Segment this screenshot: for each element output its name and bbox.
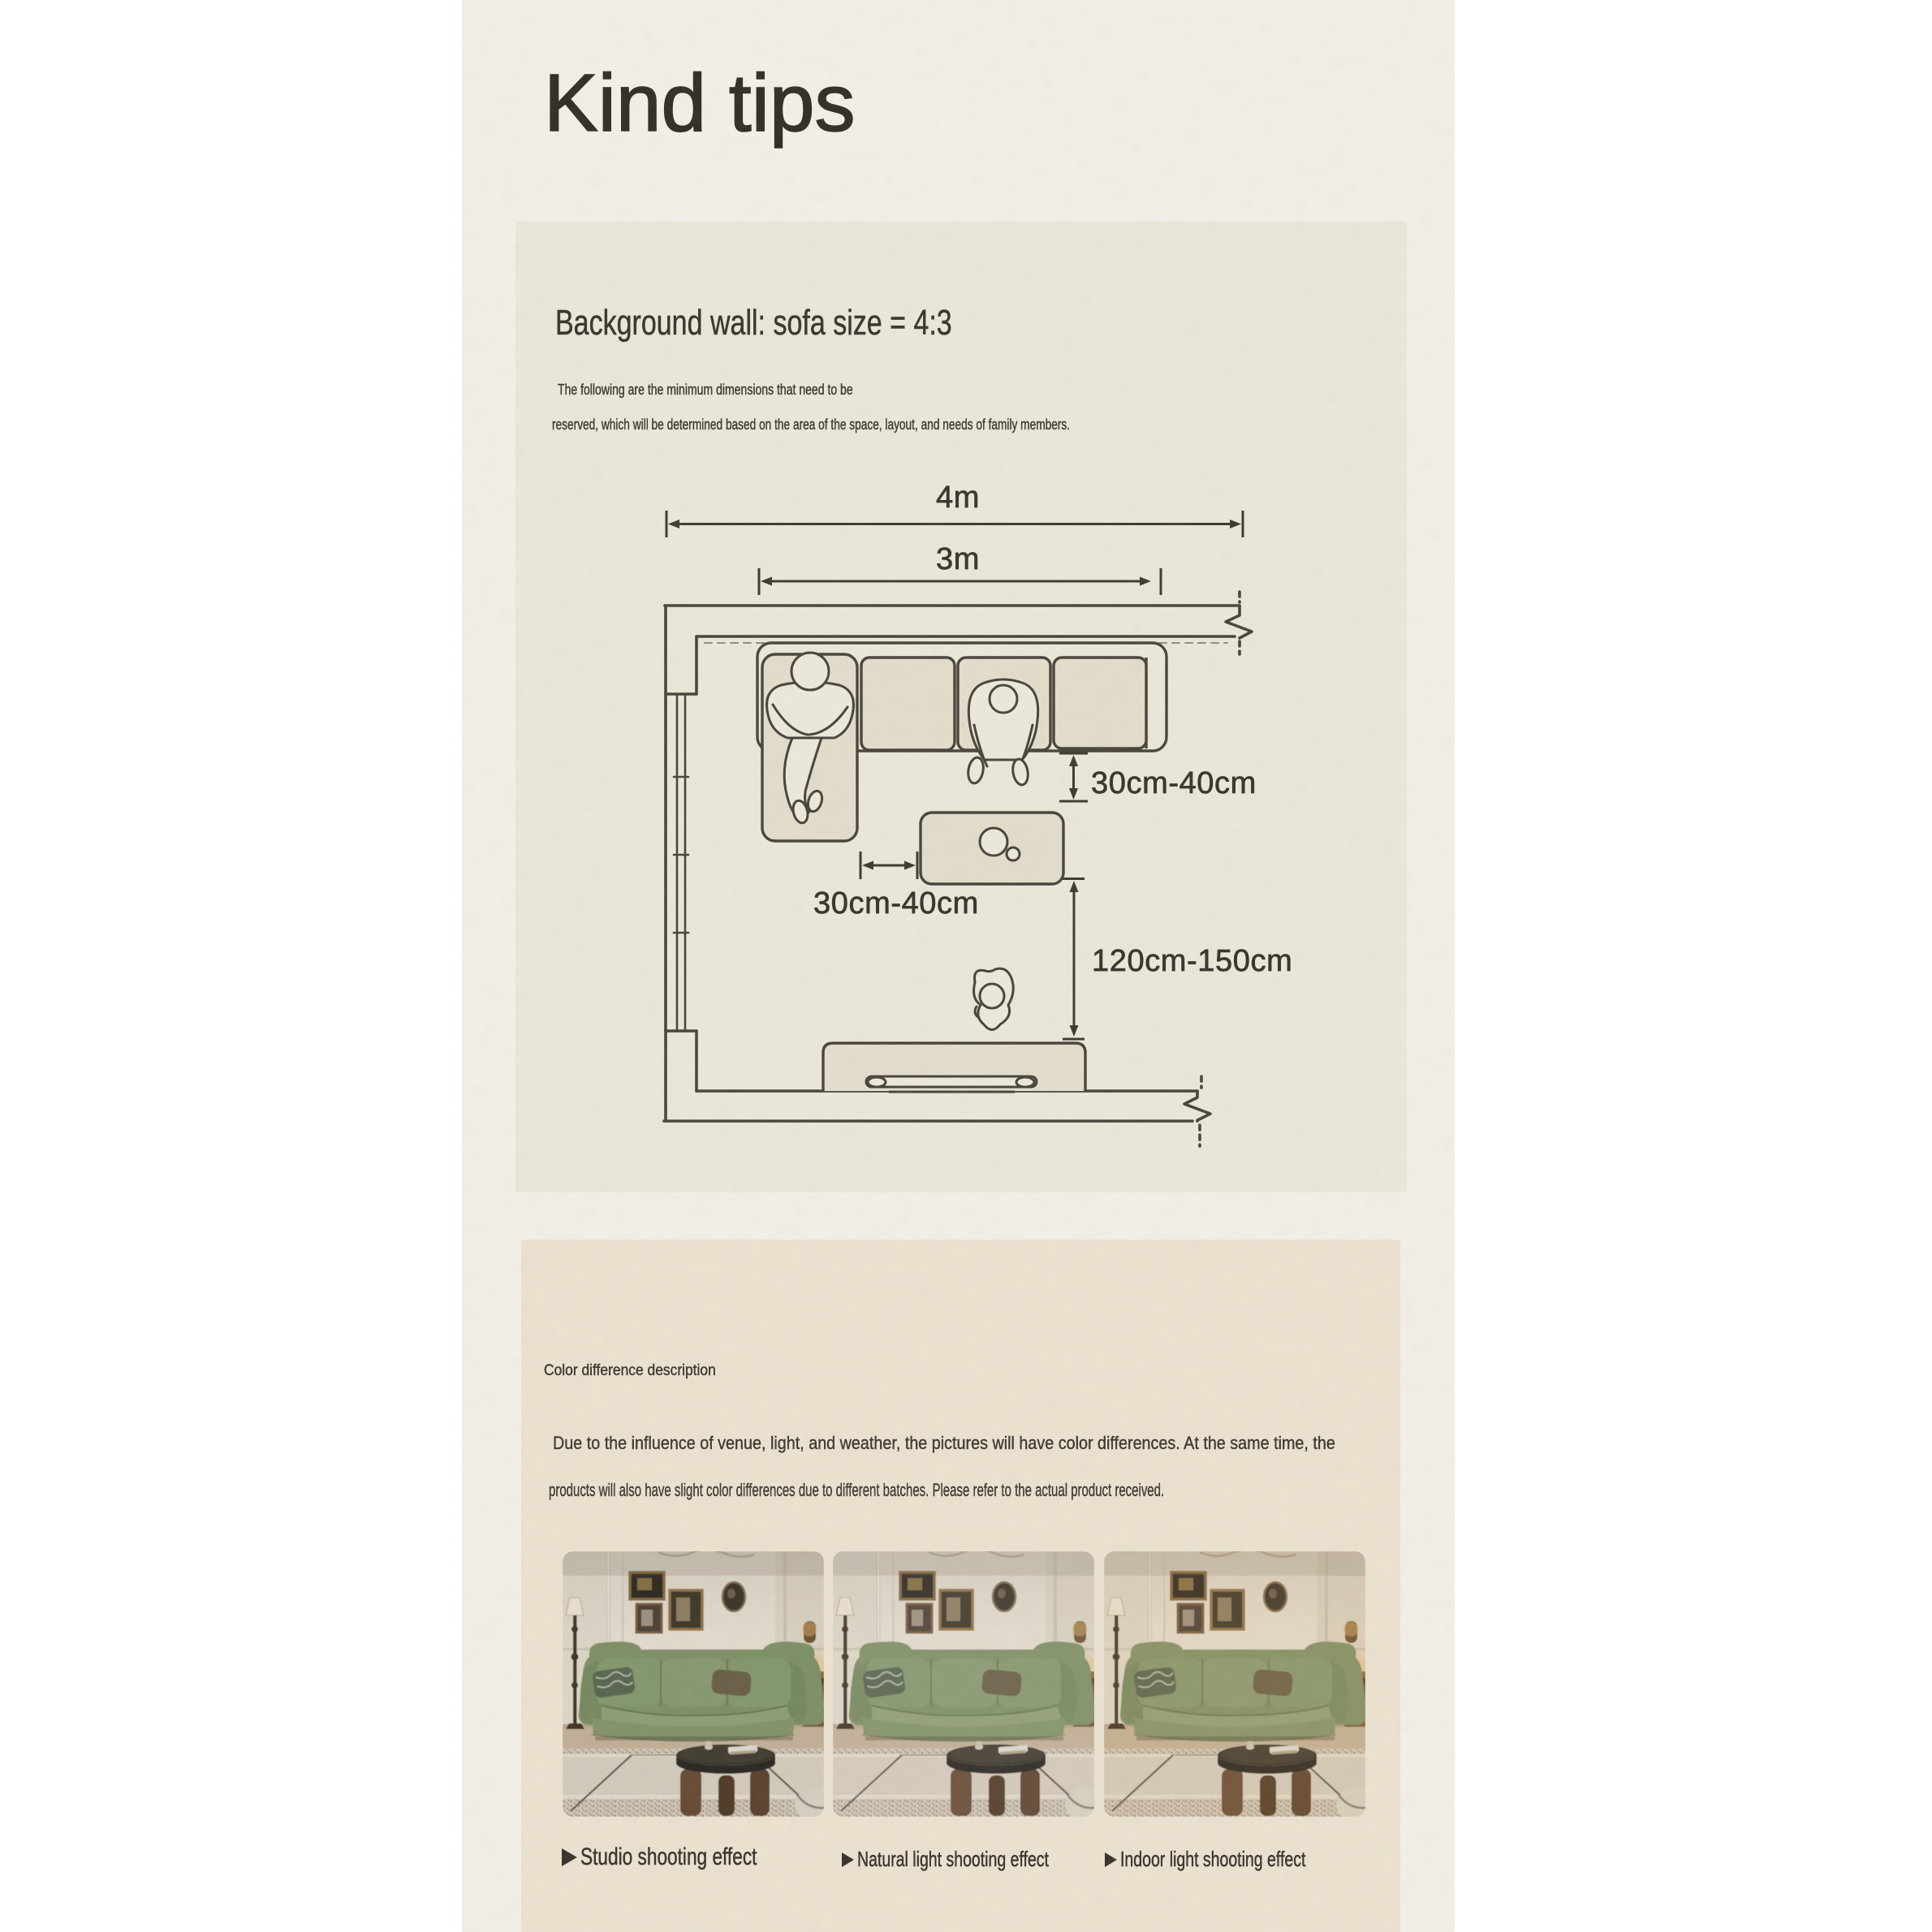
- svg-text:30cm-40cm: 30cm-40cm: [1091, 766, 1257, 800]
- svg-text:3m: 3m: [936, 542, 980, 576]
- svg-text:120cm-150cm: 120cm-150cm: [1092, 944, 1292, 978]
- svg-text:4m: 4m: [936, 481, 980, 515]
- svg-text:30cm-40cm: 30cm-40cm: [813, 886, 979, 921]
